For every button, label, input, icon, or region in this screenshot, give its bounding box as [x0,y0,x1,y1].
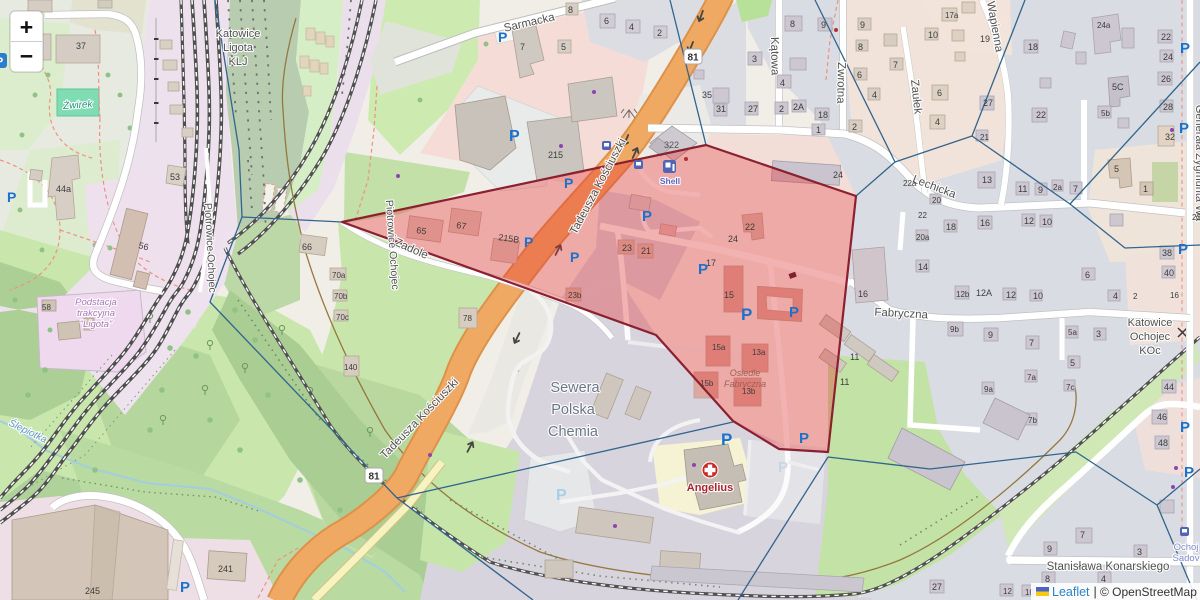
svg-text:Leaflet: Leaflet [1052,585,1090,599]
svg-text:35: 35 [702,90,712,100]
svg-text:48: 48 [1158,438,1168,448]
svg-text:P: P [1180,419,1190,436]
svg-text:13b: 13b [742,387,756,396]
svg-text:P: P [509,128,520,145]
svg-text:13: 13 [982,175,992,185]
svg-text:24: 24 [1163,52,1173,62]
svg-text:3: 3 [1096,329,1101,339]
svg-text:18: 18 [946,222,956,232]
svg-text:P: P [564,175,573,191]
svg-text:7b: 7b [1028,416,1037,425]
svg-text:5b: 5b [1101,109,1110,118]
svg-text:11: 11 [840,377,849,387]
svg-text:22: 22 [1192,213,1200,222]
svg-text:Ochoj: Ochoj [1174,542,1199,553]
svg-text:Osiedle: Osiedle [730,368,761,378]
svg-text:5a: 5a [1068,328,1077,337]
svg-text:5: 5 [1070,358,1075,368]
svg-text:P: P [698,261,708,278]
svg-text:66: 66 [302,242,312,252]
svg-text:46: 46 [1157,412,1167,422]
svg-text:27: 27 [748,104,758,114]
svg-text:22a: 22a [903,179,917,188]
svg-text:4: 4 [780,78,785,88]
svg-text:10: 10 [1033,291,1043,301]
svg-text:2: 2 [779,104,784,114]
svg-text:81: 81 [687,53,699,64]
svg-text:P: P [642,208,652,225]
svg-text:3: 3 [752,54,757,64]
svg-text:58: 58 [42,303,51,312]
svg-text:140: 140 [344,363,358,372]
svg-text:245: 245 [85,586,100,596]
svg-text:78: 78 [463,314,472,323]
svg-text:5C: 5C [1112,82,1124,92]
svg-text:Ligota: Ligota [223,42,254,54]
svg-text:7: 7 [1080,530,1085,540]
svg-text:44a: 44a [56,184,71,194]
svg-text:Shell: Shell [660,176,680,186]
svg-text:Angelius: Angelius [687,482,733,494]
svg-text:1: 1 [816,125,821,135]
svg-text:9: 9 [860,20,865,30]
svg-text:7c: 7c [1066,383,1074,392]
svg-text:9a: 9a [984,385,993,394]
svg-text:9: 9 [988,330,993,340]
svg-text:P: P [524,234,533,250]
svg-text:7: 7 [1029,338,1034,348]
svg-text:22: 22 [745,222,755,232]
svg-text:32: 32 [1165,132,1175,142]
svg-text:28: 28 [1163,102,1173,112]
svg-text:5: 5 [561,42,566,52]
svg-text:12: 12 [1006,290,1016,300]
svg-text:P: P [1178,241,1188,258]
svg-text:P: P [180,579,190,596]
svg-text:27: 27 [983,98,993,108]
svg-text:40: 40 [1164,268,1174,278]
svg-text:10: 10 [1042,217,1052,227]
svg-text:P: P [789,304,799,321]
svg-text:7: 7 [893,60,898,70]
svg-text:44: 44 [1164,382,1174,392]
svg-text:+: + [20,14,33,40]
svg-text:23b: 23b [568,291,582,300]
svg-text:2: 2 [1133,292,1138,301]
svg-text:2a: 2a [1053,183,1062,192]
svg-text:|: | [1094,585,1097,599]
svg-text:P: P [556,487,567,504]
svg-text:9: 9 [1038,185,1043,195]
svg-text:4: 4 [935,117,940,127]
svg-text:Żwirek: Żwirek [62,98,94,112]
svg-text:P: P [7,189,16,205]
svg-text:P: P [778,459,788,476]
svg-text:8: 8 [790,19,795,29]
svg-text:7: 7 [1073,184,1078,194]
svg-text:−: − [20,43,33,69]
svg-text:322: 322 [664,140,679,150]
svg-text:16: 16 [1170,291,1179,300]
svg-text:22: 22 [918,211,927,220]
svg-text:24: 24 [833,170,843,180]
svg-text:24a: 24a [1097,21,1111,30]
svg-text:19: 19 [980,34,990,44]
svg-text:9b: 9b [950,325,959,334]
svg-text:13a: 13a [752,348,766,357]
svg-text:3: 3 [1137,547,1142,557]
svg-text:12: 12 [1003,587,1012,596]
svg-text:Chemia: Chemia [548,424,599,440]
svg-text:Katowice: Katowice [216,28,261,40]
svg-text:4: 4 [872,90,877,100]
svg-text:31: 31 [716,104,726,114]
svg-text:14: 14 [918,262,928,272]
svg-text:16: 16 [858,289,868,299]
svg-text:4: 4 [1101,574,1106,584]
svg-text:23: 23 [622,243,632,253]
svg-text:81: 81 [368,472,380,483]
svg-text:70a: 70a [332,271,346,280]
svg-text:Generała Zygmunta Wa: Generała Zygmunta Wa [1193,105,1200,222]
svg-text:17a: 17a [945,11,959,20]
svg-text:2: 2 [657,28,662,38]
svg-text:10: 10 [928,30,938,40]
svg-text:22: 22 [1036,110,1046,120]
svg-text:26: 26 [1161,74,1171,84]
svg-text:53: 53 [170,172,180,182]
svg-text:4: 4 [1113,291,1118,301]
svg-text:6: 6 [937,88,942,98]
svg-text:P: P [1179,120,1189,137]
svg-text:6: 6 [1085,270,1090,280]
svg-text:P: P [0,56,3,68]
svg-text:"Ligota": "Ligota" [80,319,113,330]
svg-text:65: 65 [416,225,427,236]
svg-text:P: P [721,430,732,449]
svg-text:8: 8 [858,42,863,52]
svg-text:70c: 70c [336,313,349,322]
svg-text:16: 16 [980,218,990,228]
svg-text:7a: 7a [1027,373,1036,382]
svg-text:24: 24 [728,234,738,244]
svg-text:20: 20 [932,196,941,205]
svg-text:Ochojec: Ochojec [1130,331,1171,343]
svg-text:5: 5 [1114,164,1119,174]
svg-text:7: 7 [520,42,525,52]
svg-text:70b: 70b [334,292,348,301]
svg-text:P: P [741,305,752,324]
svg-text:18: 18 [1028,42,1038,52]
svg-text:Sadov: Sadov [1173,553,1200,564]
svg-text:9: 9 [821,20,826,30]
svg-text:6: 6 [857,70,862,80]
svg-text:P: P [570,249,579,265]
svg-text:1: 1 [1143,184,1148,194]
svg-text:Katowice: Katowice [1128,317,1173,329]
svg-text:241: 241 [218,564,233,574]
svg-text:18: 18 [818,110,828,120]
svg-text:15b: 15b [700,379,714,388]
svg-text:9: 9 [1047,544,1052,554]
svg-text:22: 22 [1161,32,1171,42]
svg-text:trakcyjna: trakcyjna [77,308,115,319]
svg-text:KLJ: KLJ [229,56,248,68]
svg-text:20a: 20a [916,233,930,242]
svg-text:12A: 12A [976,288,992,298]
svg-text:21: 21 [980,133,989,142]
svg-text:27: 27 [932,582,942,592]
svg-text:12: 12 [1024,216,1034,226]
svg-text:6: 6 [604,16,609,26]
svg-text:P: P [1180,40,1190,57]
svg-text:4: 4 [629,22,634,32]
svg-text:Zwrotna: Zwrotna [834,62,847,104]
svg-text:215: 215 [548,150,563,160]
svg-text:8: 8 [568,5,573,15]
svg-text:38: 38 [1162,248,1172,258]
svg-text:P: P [799,430,809,447]
svg-text:21: 21 [641,246,651,256]
svg-text:15a: 15a [712,343,726,352]
svg-text:© OpenStreetMap: © OpenStreetMap [1100,585,1197,599]
svg-text:8: 8 [1045,574,1050,584]
svg-text:67: 67 [456,220,467,231]
svg-text:KOc: KOc [1139,345,1161,357]
svg-text:2: 2 [852,122,857,132]
svg-text:Podstacja: Podstacja [75,297,117,308]
svg-text:15: 15 [724,290,734,300]
svg-text:Kątowa: Kątowa [768,37,781,76]
svg-text:12b: 12b [956,290,970,299]
svg-text:P: P [1184,464,1194,481]
svg-text:Polska: Polska [551,402,595,418]
svg-text:Sewera: Sewera [550,380,600,396]
svg-text:37: 37 [76,41,86,51]
svg-text:2A: 2A [793,102,804,112]
svg-text:11: 11 [850,352,859,362]
svg-text:P: P [498,29,507,45]
svg-text:Stanisława Konarskiego: Stanisława Konarskiego [1047,561,1170,573]
svg-text:11: 11 [1018,184,1027,194]
